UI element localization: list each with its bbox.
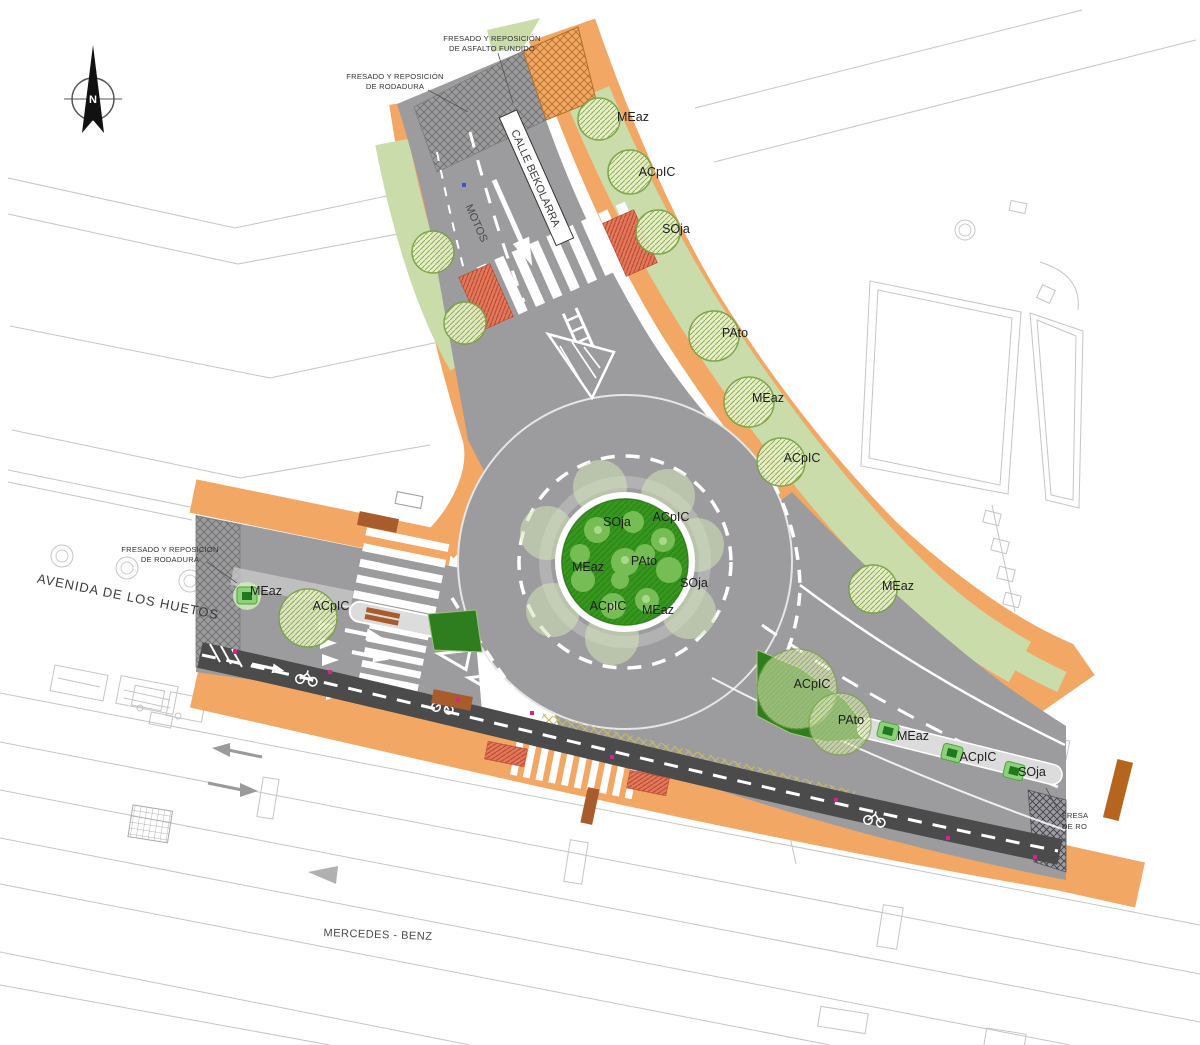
tree-label: PAto [838,713,864,727]
tree-label: SOja [1018,765,1046,779]
tree-label: ACpIC [639,165,676,179]
tree-label: MEaz [617,110,649,124]
tree-label: MEaz [752,391,784,405]
svg-text:DE ASFALTO FUNDIDO: DE ASFALTO FUNDIDO [449,44,535,53]
tree-label: ACpIC [313,599,350,613]
svg-text:DE RO: DE RO [1062,822,1087,831]
tree-label: PAto [722,326,748,340]
tree-label: ACpIC [794,677,831,691]
svg-text:FRESADO Y REPOSICIÓN: FRESADO Y REPOSICIÓN [443,34,540,43]
north-arrow-letter: N [89,94,97,106]
tree-label: MEaz [642,603,674,617]
svg-text:FRESADO Y REPOSICIÓN: FRESADO Y REPOSICIÓN [346,72,443,81]
tree-label: MEaz [897,729,929,743]
svg-text:MERCEDES - BENZ: MERCEDES - BENZ [323,927,432,943]
tree-label: SOja [603,515,631,529]
svg-text:FRESA: FRESA [1062,811,1089,820]
tree-label: PAto [631,554,657,568]
existing-direction-arrows [208,743,262,797]
north-arrow: N [64,45,122,133]
annotation-asfalto-fundido: FRESADO Y REPOSICIÓN DE ASFALTO FUNDIDO [443,34,540,53]
tree-label: ACpIC [653,510,690,524]
tree-label: MEaz [882,579,914,593]
street-label-avenida-huetos: AVENIDA DE LOS HUETOS [36,571,221,623]
svg-text:DE RODADURA: DE RODADURA [141,555,200,564]
svg-text:DE RODADURA: DE RODADURA [366,82,425,91]
island-west-green [428,610,482,652]
svg-text:FRESADO Y REPOSICIÓN: FRESADO Y REPOSICIÓN [121,545,218,554]
tree-label: ACpIC [590,599,627,613]
tree-label: SOja [662,222,690,236]
tree-label: SOja [680,576,708,590]
site-plan-drawing: FRESADO Y REPOSICIÓN DE ASFALTO FUNDIDO … [0,0,1200,1045]
tree-label: MEaz [572,560,604,574]
svg-text:AVENIDA DE LOS HUETOS: AVENIDA DE LOS HUETOS [36,571,221,623]
tree-label: MEaz [250,584,282,598]
property-label-mercedes-benz: MERCEDES - BENZ [323,927,432,943]
tree-label: ACpIC [960,750,997,764]
tree-label: ACpIC [784,451,821,465]
annotation-rodadura-top: FRESADO Y REPOSICIÓN DE RODADURA [346,72,443,91]
plan-canvas: FRESADO Y REPOSICIÓN DE ASFALTO FUNDIDO … [0,0,1200,1045]
blue-marker [462,183,466,187]
